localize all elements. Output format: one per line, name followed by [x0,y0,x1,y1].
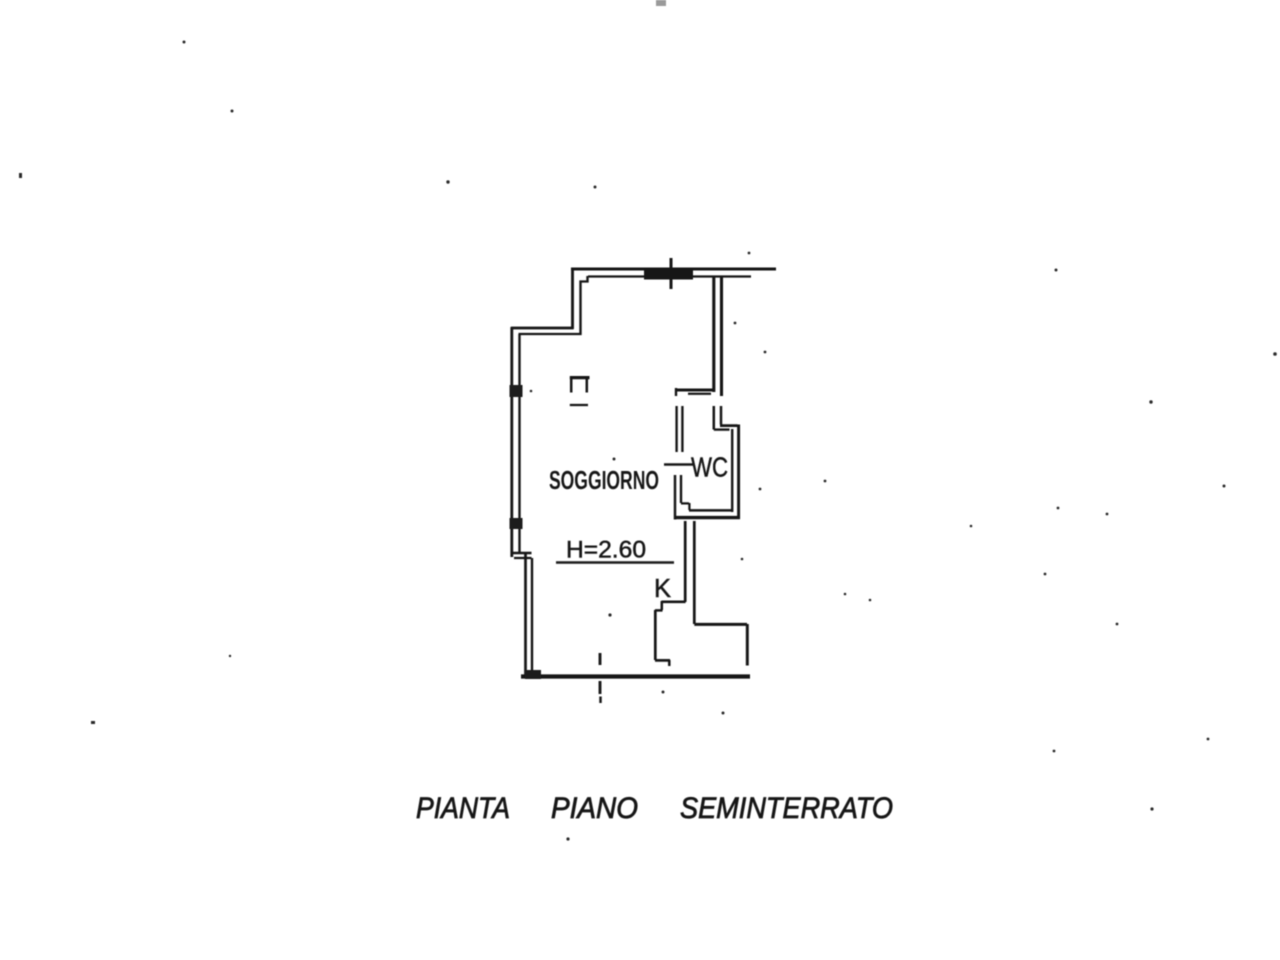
svg-text:SEMINTERRATO: SEMINTERRATO [680,792,893,825]
svg-text:SOGGIORNO: SOGGIORNO [549,465,659,495]
svg-text:PIANTA: PIANTA [416,792,510,825]
svg-text:PIANO: PIANO [551,792,638,825]
svg-text:K: K [654,575,671,603]
svg-text:WC: WC [691,452,728,483]
svg-text:H=2.60: H=2.60 [566,537,646,564]
